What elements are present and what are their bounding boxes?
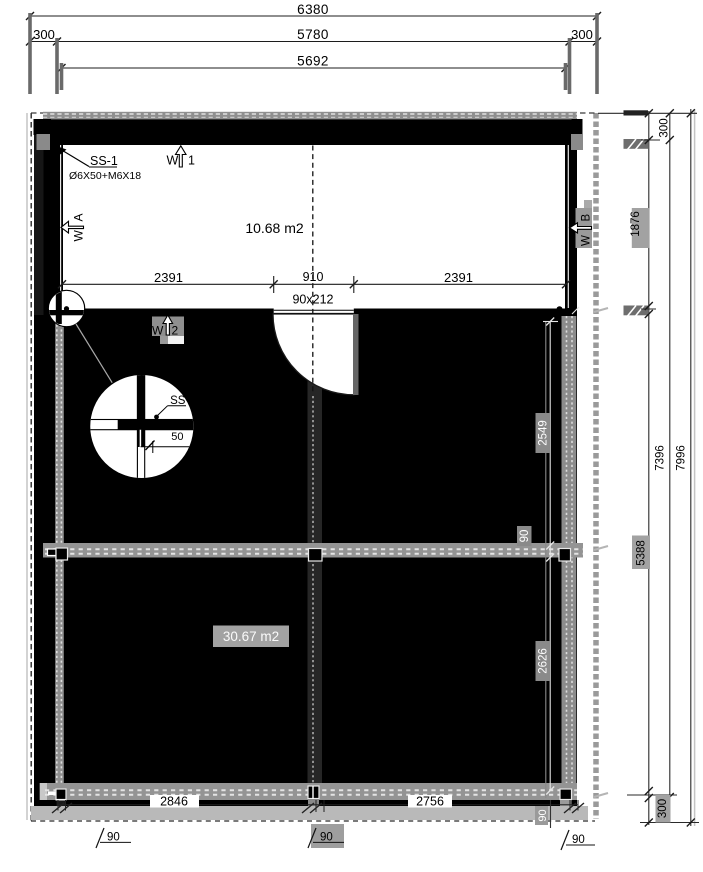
- svg-text:90: 90: [320, 832, 333, 844]
- svg-text:2549: 2549: [538, 420, 550, 446]
- svg-text:910: 910: [303, 270, 324, 284]
- svg-text:5780: 5780: [297, 27, 329, 42]
- svg-text:1: 1: [188, 154, 195, 168]
- svg-text:5692: 5692: [297, 54, 329, 69]
- svg-text:50: 50: [171, 431, 183, 443]
- svg-text:300: 300: [659, 118, 671, 137]
- svg-text:5388: 5388: [636, 540, 648, 566]
- svg-text:W: W: [581, 235, 593, 246]
- svg-text:2626: 2626: [538, 648, 550, 674]
- svg-text:A: A: [72, 213, 86, 221]
- svg-text:7396: 7396: [655, 445, 667, 471]
- svg-text:SS: SS: [170, 395, 186, 407]
- svg-text:300: 300: [33, 27, 55, 42]
- svg-text:W: W: [167, 154, 179, 168]
- svg-text:Ø6X50+M6X18: Ø6X50+M6X18: [69, 170, 141, 182]
- svg-text:1876: 1876: [630, 211, 642, 237]
- svg-text:90: 90: [537, 809, 549, 821]
- svg-text:10.68 m2: 10.68 m2: [245, 220, 304, 236]
- svg-text:B: B: [581, 214, 593, 222]
- svg-text:30.67 m2: 30.67 m2: [223, 629, 279, 644]
- svg-text:2391: 2391: [154, 270, 183, 285]
- svg-text:300: 300: [657, 799, 669, 818]
- svg-text:2391: 2391: [444, 270, 473, 285]
- svg-text:W: W: [72, 230, 86, 242]
- svg-text:W: W: [152, 324, 164, 338]
- svg-text:6380: 6380: [297, 2, 329, 17]
- svg-text:2846: 2846: [160, 795, 188, 809]
- svg-text:90: 90: [107, 832, 120, 844]
- svg-text:7996: 7996: [676, 445, 688, 471]
- svg-text:SS-1: SS-1: [90, 154, 118, 168]
- svg-text:90: 90: [519, 530, 531, 543]
- svg-text:90x212: 90x212: [292, 293, 333, 307]
- svg-text:2756: 2756: [416, 795, 444, 809]
- svg-text:90: 90: [572, 834, 585, 846]
- svg-text:2: 2: [172, 324, 179, 338]
- svg-text:300: 300: [571, 27, 593, 42]
